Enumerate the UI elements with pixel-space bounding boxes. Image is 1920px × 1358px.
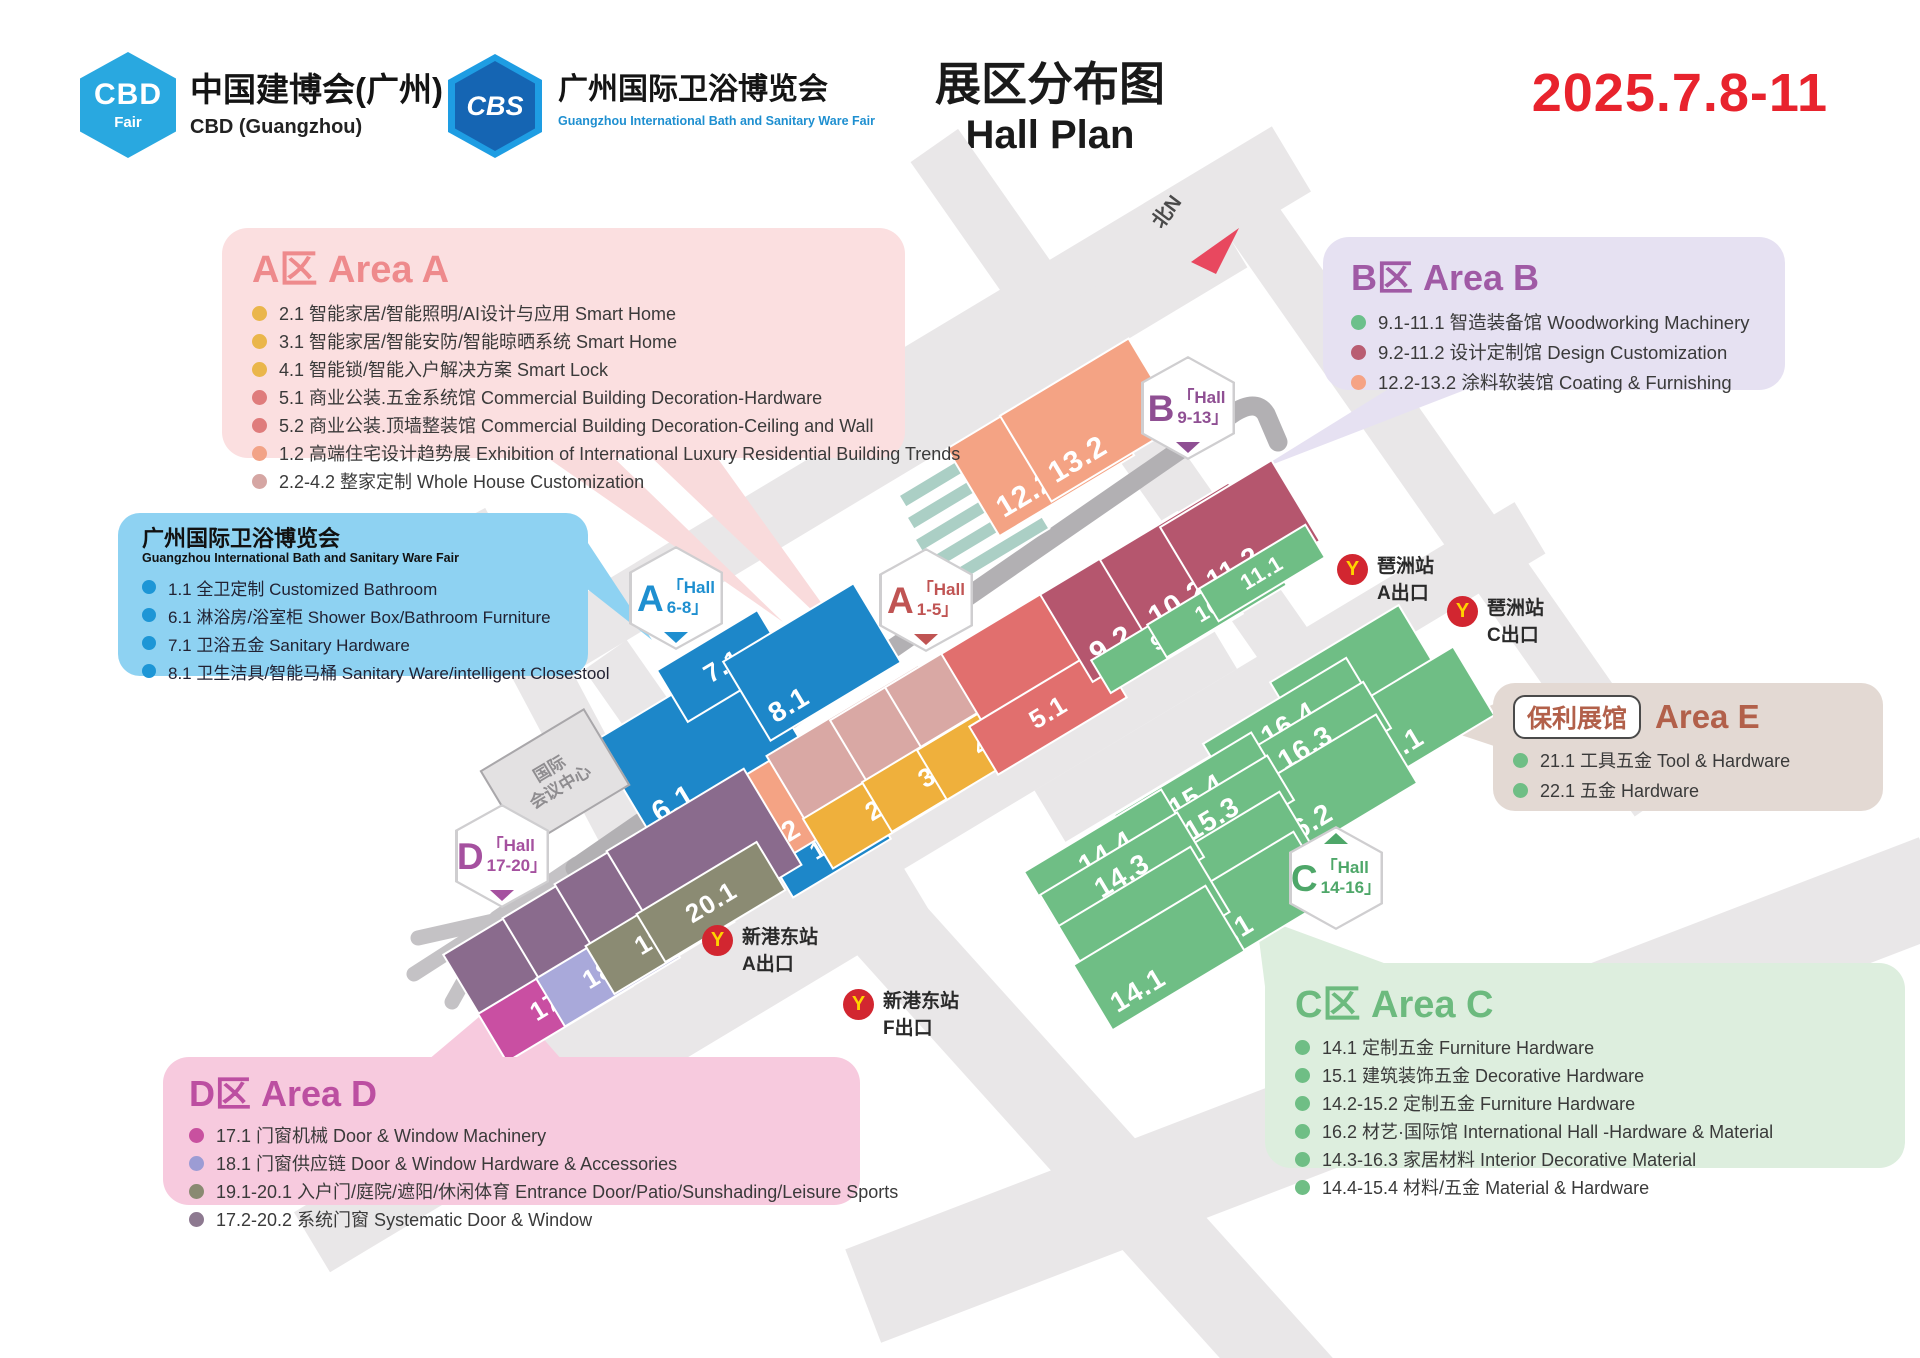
legend-area-a-title: A区 Area A bbox=[252, 238, 905, 293]
hall-letter: B bbox=[1148, 390, 1175, 427]
hall-badge-pointer bbox=[664, 632, 688, 643]
hall-letter: D bbox=[457, 838, 484, 875]
legend-dot-icon bbox=[1295, 1068, 1310, 1083]
legend-item-label: 2.1 智能家居/智能照明/AI设计与应用 Smart Home bbox=[279, 300, 676, 326]
legend-item: 14.3-16.3 家居材料 Interior Decorative Mater… bbox=[1295, 1145, 1905, 1173]
station-exit: A出口 bbox=[742, 952, 818, 979]
metro-station: Y琶洲站C出口 bbox=[1447, 596, 1544, 649]
legend-bath-fair: 广州国际卫浴博览会 Guangzhou International Bath a… bbox=[118, 513, 588, 676]
legend-dot-icon bbox=[252, 446, 267, 461]
legend-item-label: 5.1 商业公装.五金系统馆 Commercial Building Decor… bbox=[279, 384, 822, 410]
legend-item: 14.4-15.4 材料/五金 Material & Hardware bbox=[1295, 1173, 1905, 1201]
metro-logo-icon: Y bbox=[702, 925, 733, 956]
legend-items: 21.1 工具五金 Tool & Hardware22.1 五金 Hardwar… bbox=[1513, 745, 1883, 805]
legend-item: 9.1-11.1 智造装备馆 Woodworking Machinery bbox=[1351, 307, 1785, 337]
legend-dot-icon bbox=[142, 608, 156, 622]
legend-item-label: 3.1 智能家居/智能安防/智能晾晒系统 Smart Home bbox=[279, 328, 677, 354]
legend-area-c-title: C区 Area C bbox=[1295, 973, 1905, 1028]
hall-badge-A68: A「Hall6-8」 bbox=[629, 546, 723, 650]
legend-dot-icon bbox=[142, 580, 156, 594]
legend-area-d: D区 Area D 17.1 门窗机械 Door & Window Machin… bbox=[163, 1057, 860, 1205]
legend-item: 12.2-13.2 涂料软装馆 Coating & Furnishing bbox=[1351, 367, 1785, 397]
hall-badge-pointer bbox=[1324, 833, 1348, 844]
legend-item: 19.1-20.1 入户门/庭院/遮阳/休闲体育 Entrance Door/P… bbox=[189, 1177, 860, 1205]
hall-plan-poster: CBD Fair 中国建博会(广州) CBD (Guangzhou) CBS 广… bbox=[0, 0, 1920, 1358]
hall-lines: 「Hall1-5」 bbox=[917, 580, 965, 619]
legend-item-label: 9.1-11.1 智造装备馆 Woodworking Machinery bbox=[1378, 309, 1750, 335]
legend-item-label: 15.1 建筑装饰五金 Decorative Hardware bbox=[1322, 1062, 1644, 1088]
legend-items: 14.1 定制五金 Furniture Hardware15.1 建筑装饰五金 … bbox=[1295, 1033, 1905, 1201]
legend-dot-icon bbox=[1295, 1180, 1310, 1195]
hall-badge-pointer bbox=[490, 890, 514, 901]
legend-dot-icon bbox=[142, 664, 156, 678]
legend-items: 2.1 智能家居/智能照明/AI设计与应用 Smart Home3.1 智能家居… bbox=[252, 299, 905, 495]
metro-station-label: 琶洲站A出口 bbox=[1377, 554, 1434, 607]
legend-item-label: 16.2 材艺·国际馆 International Hall -Hardware… bbox=[1322, 1118, 1773, 1144]
station-name: 新港东站 bbox=[883, 989, 959, 1016]
hall-label: 「Hall bbox=[667, 578, 715, 598]
metro-logo-icon: Y bbox=[1447, 596, 1478, 627]
legend-area-b: B区 Area B 9.1-11.1 智造装备馆 Woodworking Mac… bbox=[1323, 237, 1785, 390]
legend-item: 3.1 智能家居/智能安防/智能晾晒系统 Smart Home bbox=[252, 327, 905, 355]
hall-badge-B: B「Hall9-13」 bbox=[1141, 356, 1235, 460]
legend-dot-icon bbox=[1351, 315, 1366, 330]
legend-area-d-title: D区 Area D bbox=[189, 1065, 860, 1117]
legend-item-label: 21.1 工具五金 Tool & Hardware bbox=[1540, 747, 1790, 773]
bath-fair-subtitle: Guangzhou International Bath and Sanitar… bbox=[142, 551, 588, 565]
legend-item-label: 9.2-11.2 设计定制馆 Design Customization bbox=[1378, 339, 1727, 365]
legend-item: 17.1 门窗机械 Door & Window Machinery bbox=[189, 1121, 860, 1149]
legend-dot-icon bbox=[189, 1128, 204, 1143]
hall-letter: A bbox=[887, 582, 914, 619]
legend-items: 1.1 全卫定制 Customized Bathroom6.1 淋浴房/浴室柜 … bbox=[142, 573, 588, 685]
legend-item-label: 17.1 门窗机械 Door & Window Machinery bbox=[216, 1122, 546, 1148]
hall-badge-D: D「Hall17-20」 bbox=[455, 804, 549, 908]
metro-station-label: 新港东站F出口 bbox=[883, 989, 959, 1042]
legend-dot-icon bbox=[252, 418, 267, 433]
legend-dot-icon bbox=[189, 1212, 204, 1227]
legend-item-label: 12.2-13.2 涂料软装馆 Coating & Furnishing bbox=[1378, 369, 1732, 395]
legend-item: 6.1 淋浴房/浴室柜 Shower Box/Bathroom Furnitur… bbox=[142, 601, 588, 629]
legend-dot-icon bbox=[1351, 345, 1366, 360]
legend-item: 17.2-20.2 系统门窗 Systematic Door & Window bbox=[189, 1205, 860, 1233]
hall-badge-C: C「Hall14-16」 bbox=[1289, 826, 1383, 930]
legend-item-label: 8.1 卫生洁具/智能马桶 Sanitary Ware/intelligent … bbox=[168, 659, 610, 684]
legend-dot-icon bbox=[252, 362, 267, 377]
hall-label: 「Hall bbox=[487, 836, 547, 856]
hall-badge-pointer bbox=[1176, 442, 1200, 453]
station-name: 琶洲站 bbox=[1377, 554, 1434, 581]
legend-item: 7.1 卫浴五金 Sanitary Hardware bbox=[142, 629, 588, 657]
legend-item: 14.2-15.2 定制五金 Furniture Hardware bbox=[1295, 1089, 1905, 1117]
metro-station-label: 琶洲站C出口 bbox=[1487, 596, 1544, 649]
legend-area-e: 保利展馆 Area E 21.1 工具五金 Tool & Hardware22.… bbox=[1493, 683, 1883, 811]
legend-dot-icon bbox=[1513, 753, 1528, 768]
hall-badge-pointer bbox=[914, 634, 938, 645]
legend-item: 8.1 卫生洁具/智能马桶 Sanitary Ware/intelligent … bbox=[142, 657, 588, 685]
station-exit: A出口 bbox=[1377, 581, 1434, 608]
hall-lines: 「Hall6-8」 bbox=[667, 578, 715, 617]
legend-dot-icon bbox=[189, 1156, 204, 1171]
legend-dot-icon bbox=[142, 636, 156, 650]
legend-dot-icon bbox=[189, 1184, 204, 1199]
legend-area-c: C区 Area C 14.1 定制五金 Furniture Hardware15… bbox=[1265, 963, 1905, 1168]
hall-range: 14-16」 bbox=[1321, 878, 1381, 898]
metro-station: Y琶洲站A出口 bbox=[1337, 554, 1434, 607]
legend-item: 2.2-4.2 整家定制 Whole House Customization bbox=[252, 467, 905, 495]
station-name: 琶洲站 bbox=[1487, 596, 1544, 623]
legend-item-label: 7.1 卫浴五金 Sanitary Hardware bbox=[168, 631, 410, 656]
legend-dot-icon bbox=[252, 334, 267, 349]
legend-item: 1.1 全卫定制 Customized Bathroom bbox=[142, 573, 588, 601]
hall-range: 1-5」 bbox=[917, 600, 965, 620]
legend-dot-icon bbox=[1295, 1096, 1310, 1111]
legend-item-label: 5.2 商业公装.顶墙整装馆 Commercial Building Decor… bbox=[279, 412, 874, 438]
hall-range: 9-13」 bbox=[1177, 408, 1228, 428]
legend-item: 15.1 建筑装饰五金 Decorative Hardware bbox=[1295, 1061, 1905, 1089]
legend-item-label: 2.2-4.2 整家定制 Whole House Customization bbox=[279, 468, 644, 494]
legend-area-e-title: Area E bbox=[1655, 698, 1760, 736]
legend-item-label: 6.1 淋浴房/浴室柜 Shower Box/Bathroom Furnitur… bbox=[168, 603, 551, 628]
legend-item: 16.2 材艺·国际馆 International Hall -Hardware… bbox=[1295, 1117, 1905, 1145]
legend-dot-icon bbox=[1295, 1040, 1310, 1055]
legend-dot-icon bbox=[1295, 1152, 1310, 1167]
hall-letter: C bbox=[1291, 860, 1318, 897]
hall-lines: 「Hall14-16」 bbox=[1321, 858, 1381, 897]
legend-item: 14.1 定制五金 Furniture Hardware bbox=[1295, 1033, 1905, 1061]
legend-item-label: 1.2 高端住宅设计趋势展 Exhibition of Internationa… bbox=[279, 440, 960, 466]
legend-item: 5.1 商业公装.五金系统馆 Commercial Building Decor… bbox=[252, 383, 905, 411]
legend-area-b-title: B区 Area B bbox=[1351, 249, 1785, 301]
hall-label: 「Hall bbox=[1321, 858, 1381, 878]
hall-range: 6-8」 bbox=[667, 598, 715, 618]
poly-hall-badge: 保利展馆 bbox=[1513, 695, 1641, 739]
legend-item-label: 14.2-15.2 定制五金 Furniture Hardware bbox=[1322, 1090, 1635, 1116]
legend-item: 22.1 五金 Hardware bbox=[1513, 775, 1883, 805]
metro-station-label: 新港东站A出口 bbox=[742, 925, 818, 978]
legend-item-label: 4.1 智能锁/智能入户解决方案 Smart Lock bbox=[279, 356, 608, 382]
legend-dot-icon bbox=[1513, 783, 1528, 798]
hall-letter: A bbox=[637, 580, 664, 617]
hall-lines: 「Hall17-20」 bbox=[487, 836, 547, 875]
legend-dot-icon bbox=[1295, 1124, 1310, 1139]
legend-item: 4.1 智能锁/智能入户解决方案 Smart Lock bbox=[252, 355, 905, 383]
legend-item: 2.1 智能家居/智能照明/AI设计与应用 Smart Home bbox=[252, 299, 905, 327]
legend-area-e-header: 保利展馆 Area E bbox=[1513, 695, 1883, 739]
metro-station: Y新港东站A出口 bbox=[702, 925, 818, 978]
legend-item: 5.2 商业公装.顶墙整装馆 Commercial Building Decor… bbox=[252, 411, 905, 439]
legend-item-label: 19.1-20.1 入户门/庭院/遮阳/休闲体育 Entrance Door/P… bbox=[216, 1178, 898, 1204]
legend-item-label: 14.1 定制五金 Furniture Hardware bbox=[1322, 1034, 1594, 1060]
legend-item-label: 18.1 门窗供应链 Door & Window Hardware & Acce… bbox=[216, 1150, 677, 1176]
hall-badge-A15: A「Hall1-5」 bbox=[879, 548, 973, 652]
metro-logo-icon: Y bbox=[843, 989, 874, 1020]
hall-label: 「Hall bbox=[1177, 388, 1228, 408]
legend-dot-icon bbox=[252, 474, 267, 489]
legend-items: 9.1-11.1 智造装备馆 Woodworking Machinery9.2-… bbox=[1351, 307, 1785, 397]
legend-dot-icon bbox=[252, 390, 267, 405]
legend-item: 9.2-11.2 设计定制馆 Design Customization bbox=[1351, 337, 1785, 367]
legend-item: 21.1 工具五金 Tool & Hardware bbox=[1513, 745, 1883, 775]
legend-area-a: A区 Area A 2.1 智能家居/智能照明/AI设计与应用 Smart Ho… bbox=[222, 228, 905, 458]
legend-item-label: 14.4-15.4 材料/五金 Material & Hardware bbox=[1322, 1174, 1649, 1200]
metro-logo-icon: Y bbox=[1337, 554, 1368, 585]
station-exit: F出口 bbox=[883, 1016, 959, 1043]
legend-items: 17.1 门窗机械 Door & Window Machinery18.1 门窗… bbox=[189, 1121, 860, 1233]
legend-item-label: 17.2-20.2 系统门窗 Systematic Door & Window bbox=[216, 1206, 592, 1232]
hall-label: 「Hall bbox=[917, 580, 965, 600]
hall-lines: 「Hall9-13」 bbox=[1177, 388, 1228, 427]
legend-item: 1.2 高端住宅设计趋势展 Exhibition of Internationa… bbox=[252, 439, 905, 467]
station-exit: C出口 bbox=[1487, 623, 1544, 650]
legend-item-label: 22.1 五金 Hardware bbox=[1540, 777, 1699, 803]
metro-station: Y新港东站F出口 bbox=[843, 989, 959, 1042]
bath-fair-title: 广州国际卫浴博览会 bbox=[142, 527, 588, 551]
hall-range: 17-20」 bbox=[487, 856, 547, 876]
legend-dot-icon bbox=[252, 306, 267, 321]
legend-dot-icon bbox=[1351, 375, 1366, 390]
legend-item-label: 14.3-16.3 家居材料 Interior Decorative Mater… bbox=[1322, 1146, 1696, 1172]
legend-item-label: 1.1 全卫定制 Customized Bathroom bbox=[168, 575, 437, 600]
station-name: 新港东站 bbox=[742, 925, 818, 952]
legend-item: 18.1 门窗供应链 Door & Window Hardware & Acce… bbox=[189, 1149, 860, 1177]
